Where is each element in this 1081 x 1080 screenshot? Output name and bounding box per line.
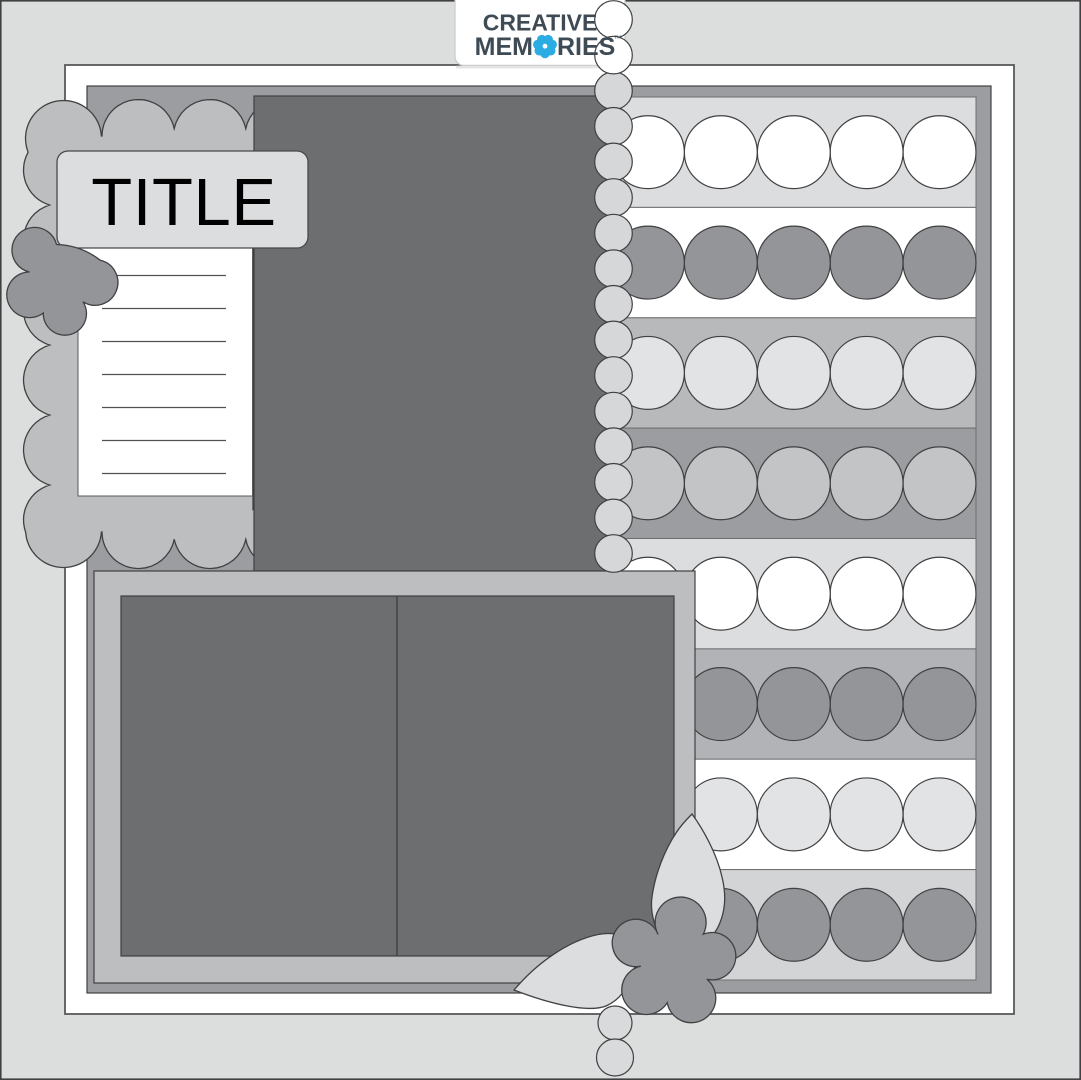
svg-text:™: ™: [614, 34, 622, 43]
svg-text:MEM: MEM: [475, 33, 533, 61]
svg-text:RIES: RIES: [557, 33, 615, 61]
svg-text:TITLE: TITLE: [91, 165, 276, 240]
svg-text:CREATIVE: CREATIVE: [483, 10, 598, 36]
